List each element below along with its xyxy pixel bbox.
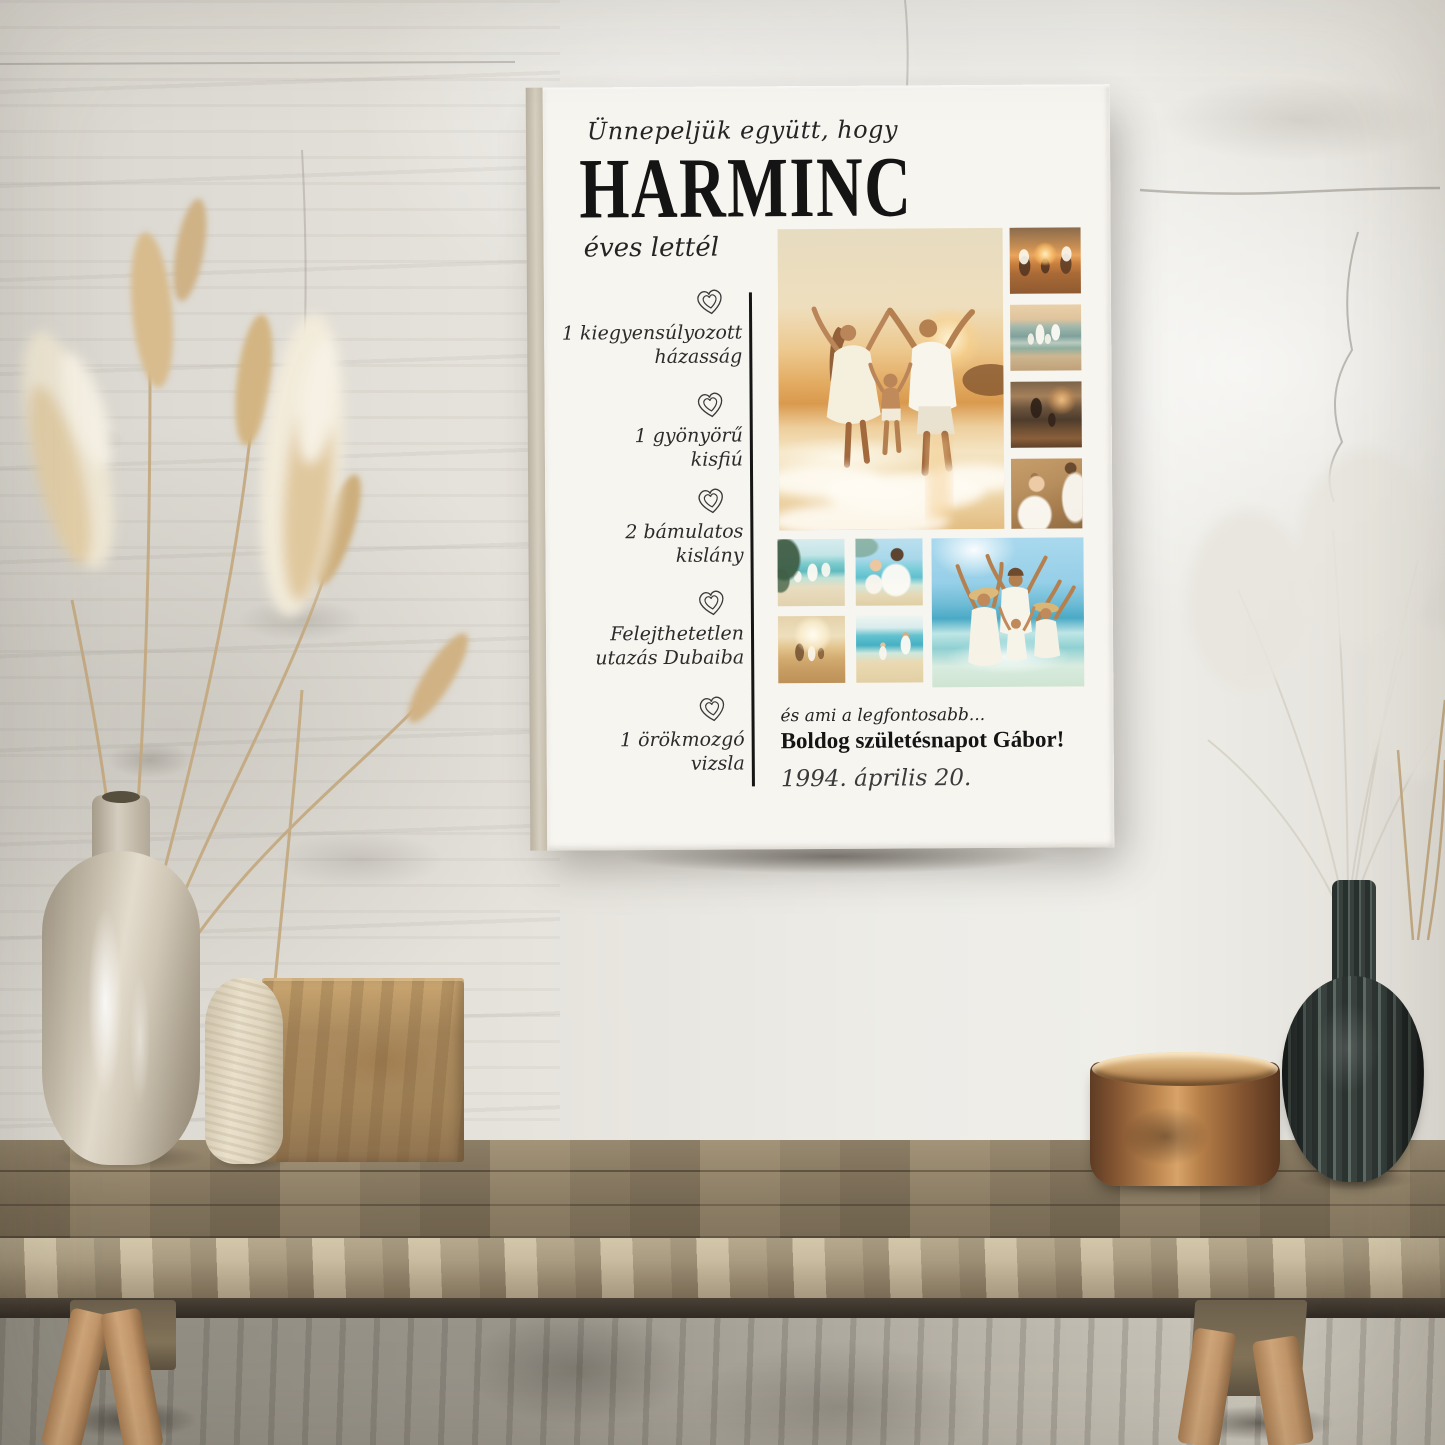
photo-collage-bottom [777,537,1084,688]
ribbed-charcoal-vase [1282,880,1424,1182]
milestone-item: 2 bámulatos kislány [563,485,743,568]
poster-face: Ünnepeljük együtt, hogy HARMINC éves let… [543,84,1115,850]
milestone-line: utazás Dubaiba [595,645,744,670]
photo-side-column [1010,227,1083,528]
heart-icon [694,691,730,725]
milestone-line: 2 bámulatos [625,519,743,544]
dried-grass-right [1118,400,1445,960]
milestone-line: 1 örökmozgó [620,727,745,752]
ribbed-vase-body [1282,976,1424,1182]
photo-girl-with-father [1011,458,1082,528]
birthday-poster-canvas: Ünnepeljük együtt, hogy HARMINC éves let… [526,84,1115,851]
photo-backlit-family-walk [778,616,845,683]
milestone-item: 1 örökmozgó vizsla [564,693,744,776]
milestone-line: vizsla [691,751,745,775]
vertical-divider [749,292,755,786]
milestone-line: 1 kiegyensúlyozott [562,320,742,345]
closing-date: 1994. április 20. [781,765,972,792]
photo-family-walking-sea [1010,304,1081,370]
milestone-item: Felejthetetlen utazás Dubaiba [564,587,744,670]
heart-icon [694,585,730,619]
vase-body [42,851,200,1165]
tall-ceramic-vase [42,795,200,1165]
photo-tropical-beach-play [777,539,844,606]
copper-bowl [1090,1062,1280,1186]
milestone-item: 1 kiegyensúlyozott házasság [562,286,742,369]
vase-mouth [102,791,140,803]
milestone-item: 1 gyönyörű kisfiú [563,389,743,472]
milestone-line: Felejthetetlen [610,621,744,646]
photo-family-running-sunset [1010,227,1081,293]
milestone-list: 1 kiegyensúlyozott házasság 1 gyönyörű k… [561,86,746,850]
photo-family-of-three-sunset [778,228,1005,530]
milestone-line: házasság [654,344,742,369]
heart-icon [693,388,729,422]
wooden-block [262,978,464,1162]
photo-collage-top [778,227,1083,530]
small-stone-vessel [205,978,283,1164]
photo-mother-child-dusk [1010,381,1081,447]
milestone-line: kisfiú [691,447,743,471]
milestone-line: 1 gyönyörű [635,423,743,448]
bench-front-edge [0,1238,1445,1302]
copper-bowl-rim [1092,1052,1278,1086]
photo-beach-run [856,615,923,682]
heart-icon [692,285,728,319]
photo-beach-selfie [855,538,922,605]
closing-message: Boldog születésnapot Gábor! [781,727,1065,755]
heart-icon [693,484,729,518]
photo-family-of-four-waving [931,537,1084,687]
milestone-line: kislány [676,543,744,567]
room-scene: Ünnepeljük együtt, hogy HARMINC éves let… [0,0,1445,1445]
closing-lead: és ami a legfontosabb... [780,705,985,726]
